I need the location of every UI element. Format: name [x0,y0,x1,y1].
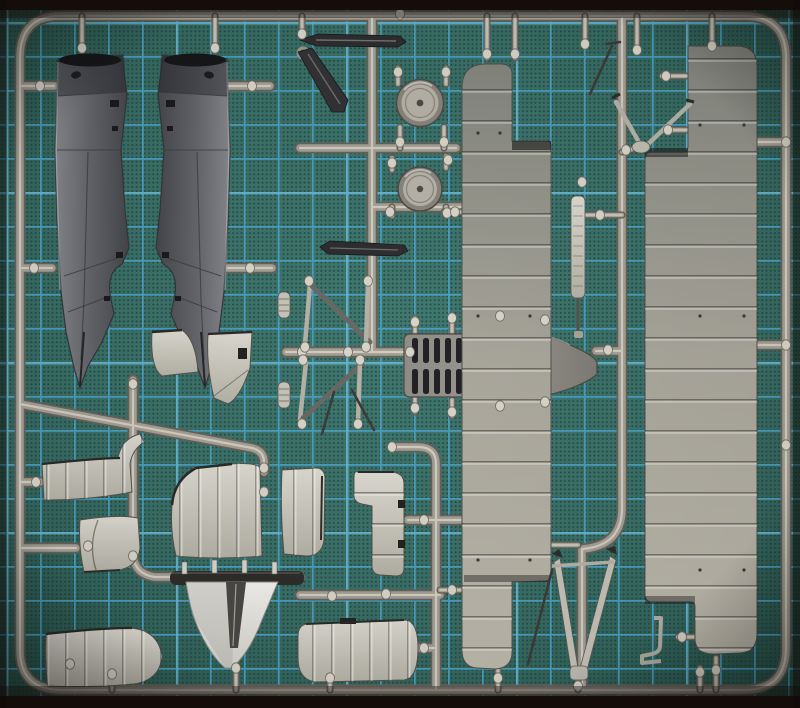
photo-vignette [0,0,800,708]
sprue-photo [0,0,800,708]
